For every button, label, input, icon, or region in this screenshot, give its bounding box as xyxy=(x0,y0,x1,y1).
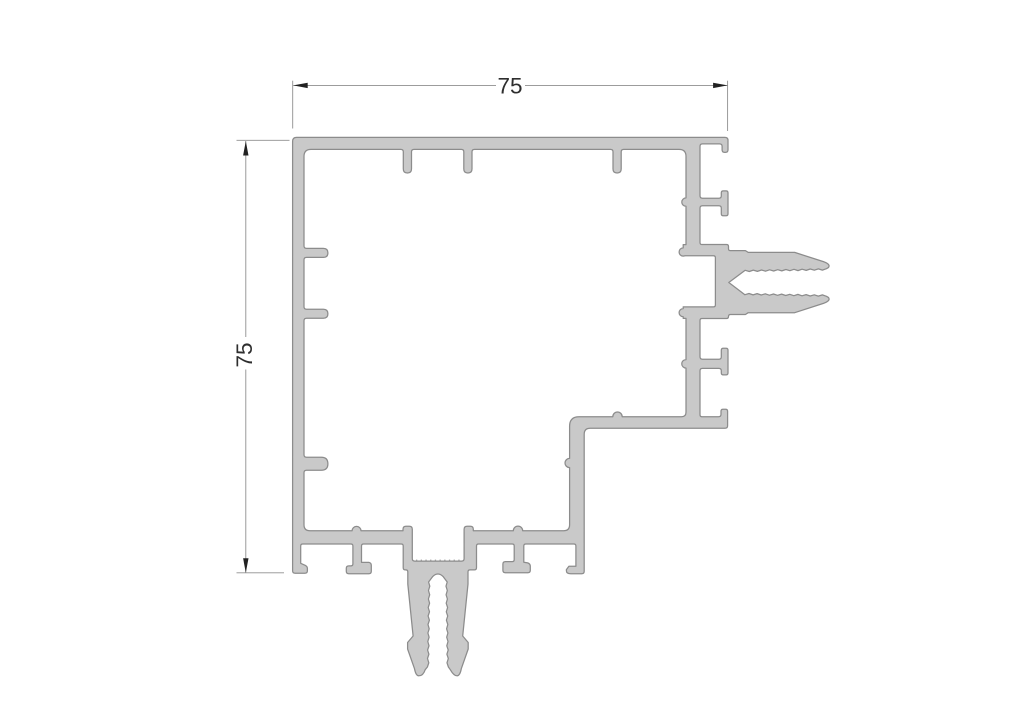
svg-text:75: 75 xyxy=(497,73,522,98)
svg-text:75: 75 xyxy=(232,342,257,367)
